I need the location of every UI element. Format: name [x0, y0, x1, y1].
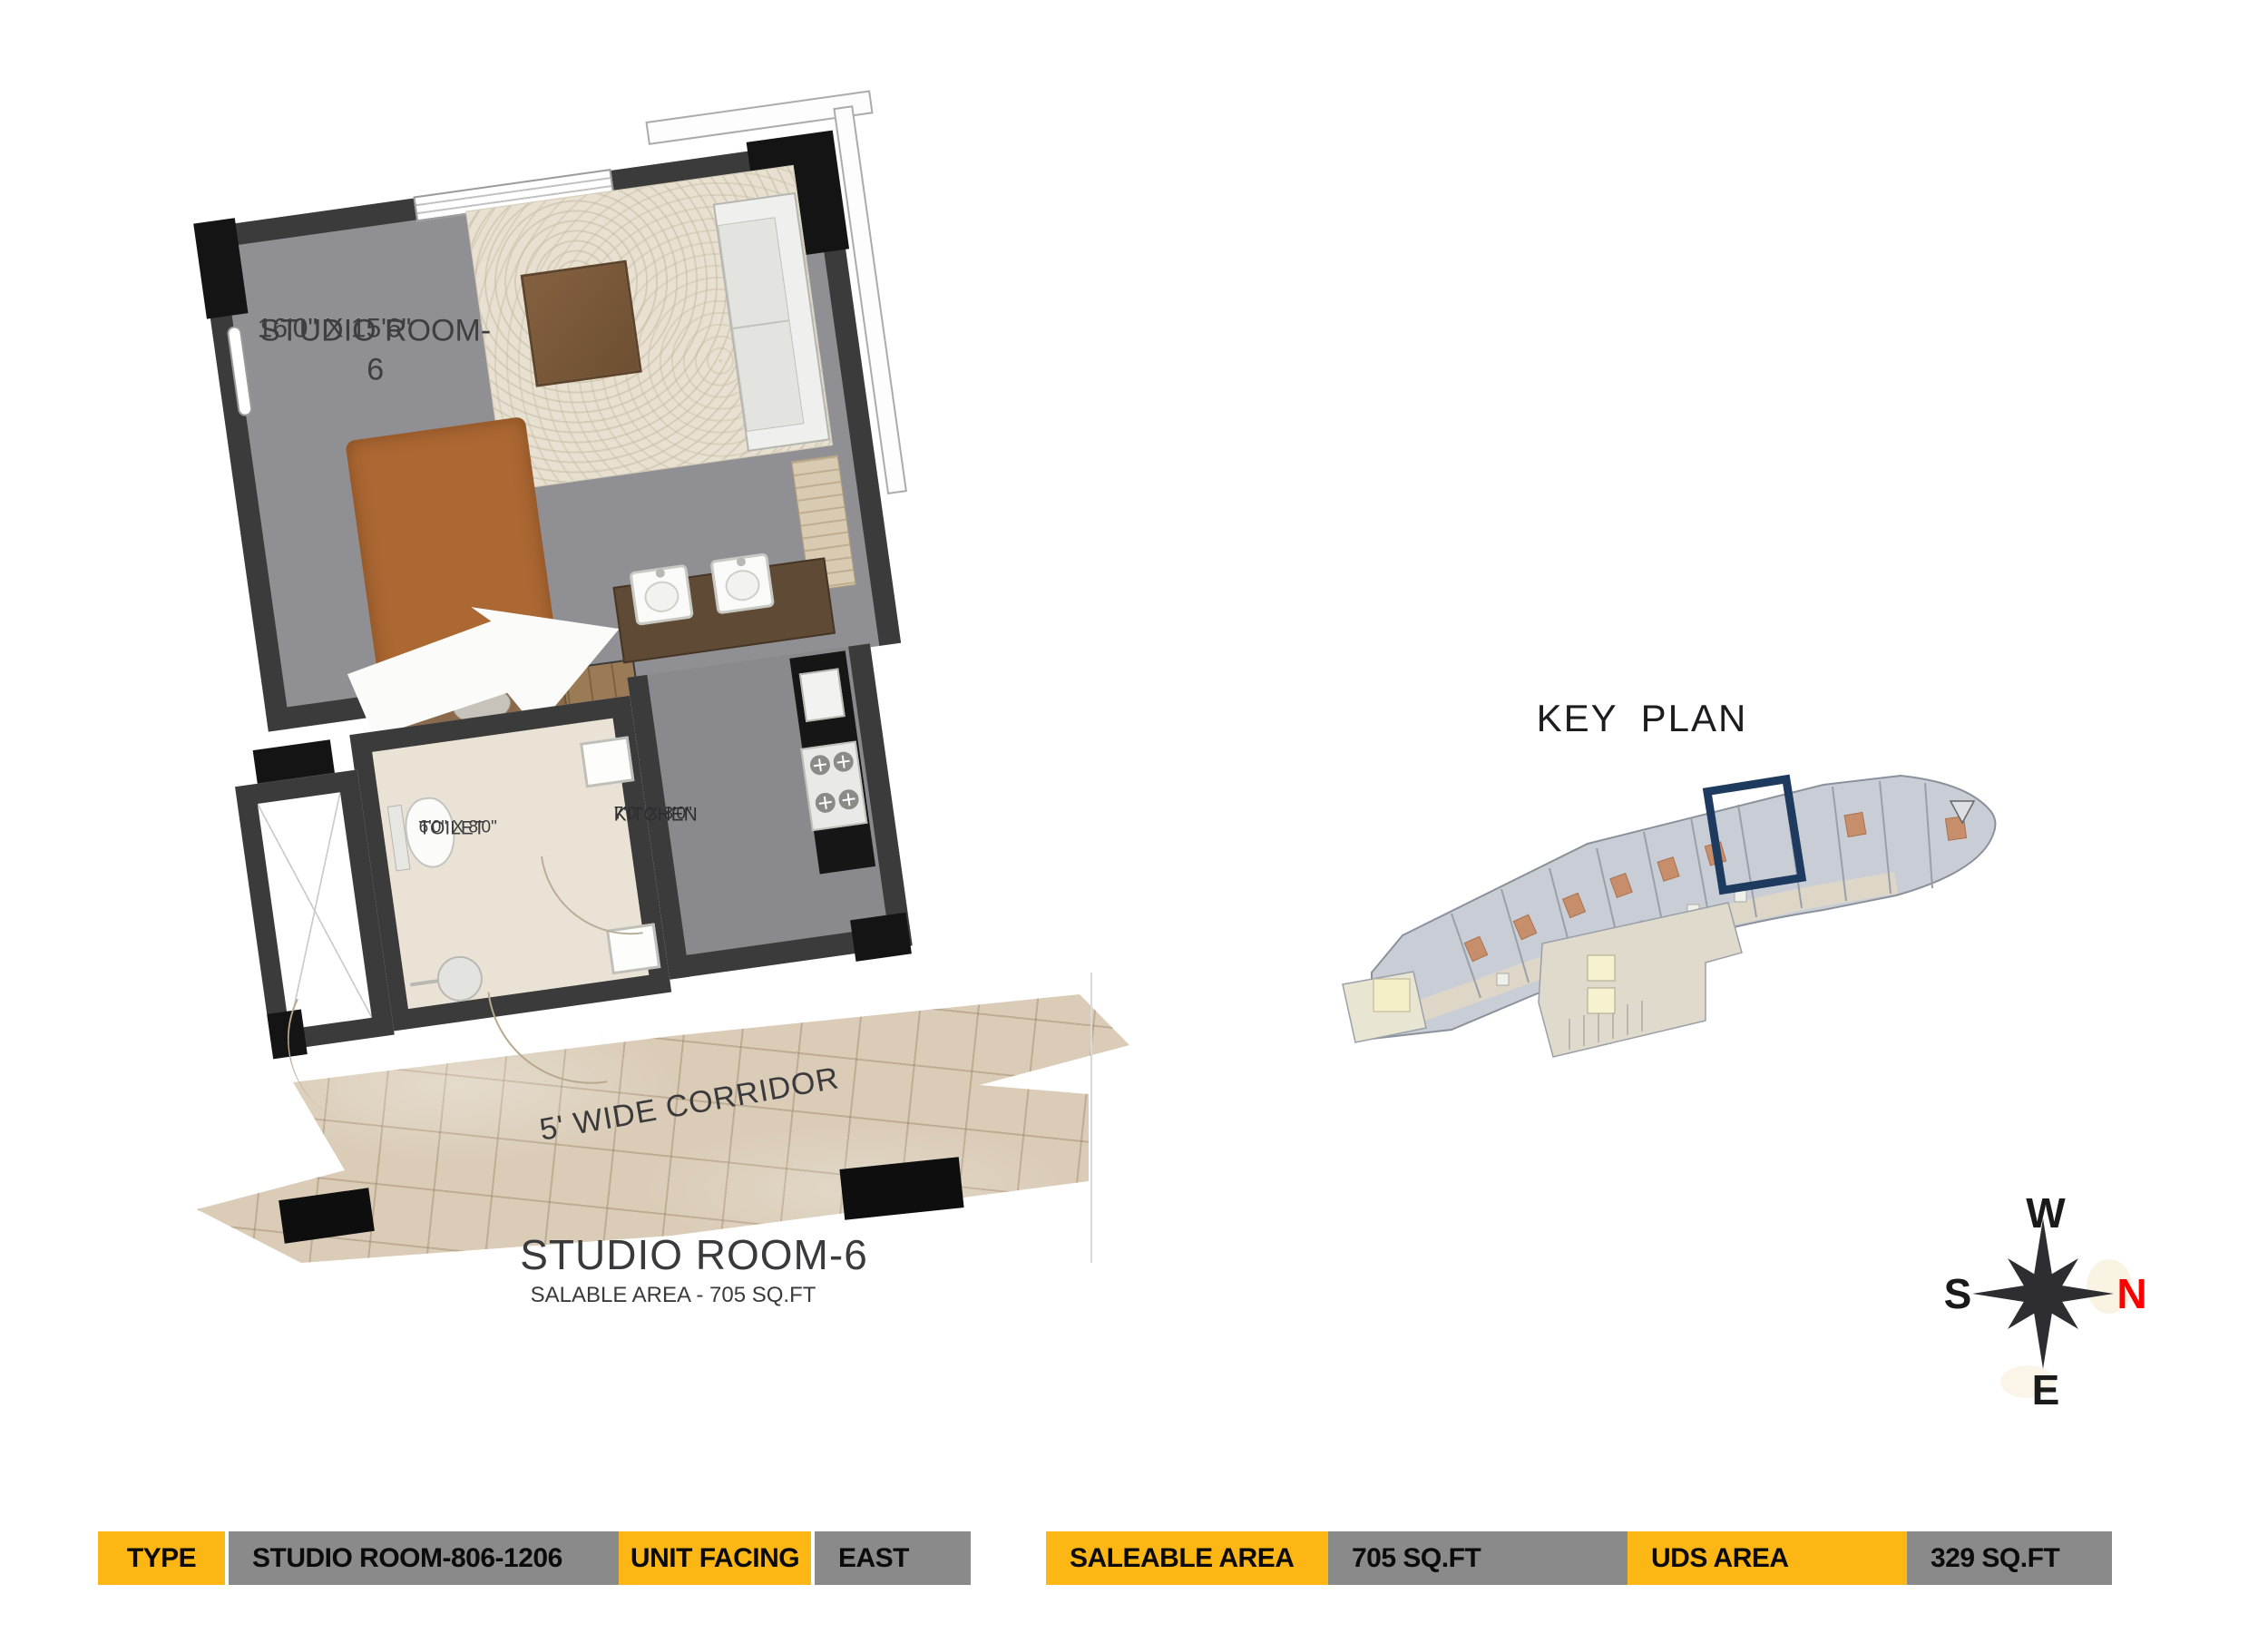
compass-star-icon — [1972, 1218, 2114, 1369]
faucet-icon — [655, 568, 665, 578]
uds-area-value: 329 SQ.FT — [1907, 1531, 2112, 1585]
burner-icon — [809, 754, 832, 777]
shower-tray — [580, 736, 634, 787]
compass-west-label: W — [2026, 1189, 2066, 1237]
kitchen-dims: 7'0" X 8'0" — [614, 803, 692, 825]
faucet-icon — [736, 557, 746, 567]
basin-bowl — [723, 568, 761, 603]
wall-corner-block — [850, 913, 912, 962]
key-plan-lift — [1588, 988, 1615, 1013]
uds-area-label: UDS AREA — [1628, 1531, 1927, 1585]
key-plan — [1315, 758, 2014, 1080]
stove — [800, 741, 867, 832]
wash-basin — [629, 564, 694, 626]
type-value: STUDIO ROOM-806-1206 — [229, 1531, 631, 1585]
floor-plan-sheet: STUDIO ROOM-6 16'0" X 15'6" TOILET 6'0" … — [0, 0, 2268, 1633]
burner-icon — [837, 788, 860, 811]
coffee-table — [521, 260, 642, 387]
key-plan-title: KEY PLAN — [1488, 697, 1796, 740]
basin-bowl — [642, 579, 680, 614]
room-dims: 16'0" X 15'6" — [258, 312, 412, 347]
compass: W S N E — [1941, 1178, 2150, 1409]
unit-facing-label: UNIT FACING — [619, 1531, 811, 1585]
burner-icon — [814, 791, 836, 814]
saleable-area-value: 705 SQ.FT — [1328, 1531, 1640, 1585]
burner-icon — [832, 750, 855, 773]
key-plan-terrace-room — [1374, 979, 1410, 1012]
key-plan-lift — [1588, 955, 1615, 981]
unit-facing-value: EAST — [815, 1531, 971, 1585]
type-label: TYPE — [98, 1531, 225, 1585]
studio-unit-plan: STUDIO ROOM-6 16'0" X 15'6" TOILET 6'0" … — [198, 140, 952, 1091]
wash-basin — [709, 552, 775, 614]
door-swing-arc — [541, 844, 643, 946]
compass-south-label: S — [1944, 1270, 1972, 1317]
plan-title: STUDIO ROOM-6 — [476, 1230, 912, 1279]
compass-east-label: E — [2032, 1366, 2060, 1409]
divider-line — [1090, 973, 1092, 1263]
round-wash-basin — [435, 953, 485, 1004]
plan-subtitle: SALABLE AREA - 705 SQ.FT — [474, 1283, 873, 1308]
toilet-dims: 6'0" X 8'0" — [419, 816, 497, 838]
compass-north-label: N — [2116, 1270, 2146, 1317]
toilet-room — [349, 696, 671, 1032]
kitchen-sink — [799, 668, 846, 722]
saleable-area-label: SALEABLE AREA — [1046, 1531, 1347, 1585]
